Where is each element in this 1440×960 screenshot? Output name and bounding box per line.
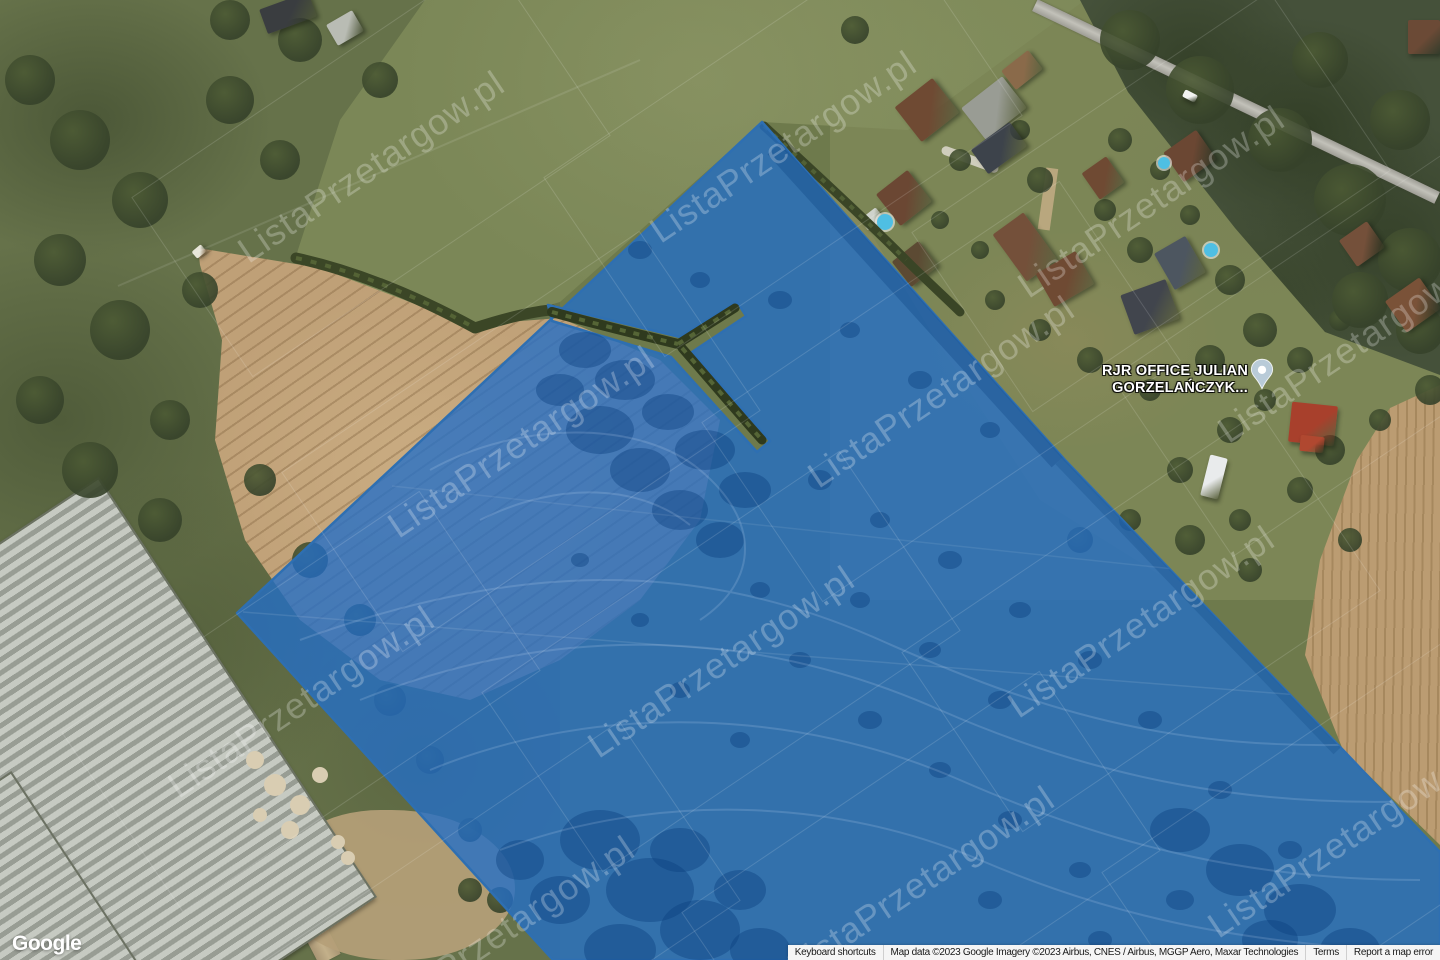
watermark-layer: ListaPrzetargow.plListaPrzetargow.plList… xyxy=(0,0,1440,960)
watermark-text: ListaPrzetargow.pl xyxy=(800,287,1082,496)
report-map-error-link[interactable]: Report a map error xyxy=(1346,945,1440,960)
watermark: ListaPrzetargow.pl xyxy=(281,231,760,652)
google-logo[interactable]: Google xyxy=(12,932,81,956)
watermark: ListaPrzetargow.pl xyxy=(901,411,1380,832)
watermark-text: ListaPrzetargow.pl xyxy=(1010,97,1292,306)
satellite-map-canvas[interactable]: ListaPrzetargow.plListaPrzetargow.plList… xyxy=(0,0,1440,960)
watermark: ListaPrzetargow.pl xyxy=(131,0,610,377)
watermark-text: ListaPrzetargow.pl xyxy=(1000,517,1282,726)
watermark-text: ListaPrzetargow.pl xyxy=(230,62,512,271)
watermark: ListaPrzetargow.pl xyxy=(61,491,540,912)
watermark-text: ListaPrzetargow.pl xyxy=(380,337,662,546)
watermark-text: ListaPrzetargow.pl xyxy=(1200,737,1440,946)
poi-label-line1: RJR OFFICE JULIAN xyxy=(1102,363,1248,380)
watermark: ListaPrzetargow.pl xyxy=(261,721,740,960)
watermark-text: ListaPrzetargow.pl xyxy=(580,557,862,766)
watermark-text: ListaPrzetargow.pl xyxy=(642,42,924,251)
keyboard-shortcuts-button[interactable]: Keyboard shortcuts xyxy=(788,945,883,960)
watermark: ListaPrzetargow.pl xyxy=(681,671,1160,960)
attribution-bar: Keyboard shortcuts Map data ©2023 Google… xyxy=(788,945,1440,960)
watermark: ListaPrzetargow.pl xyxy=(1101,631,1440,960)
watermark-text: ListaPrzetargow.pl xyxy=(1210,242,1440,451)
watermark-text: ListaPrzetargow.pl xyxy=(780,777,1062,960)
poi-label[interactable]: RJR OFFICE JULIAN GORZELAŃCZYK... xyxy=(1102,363,1248,396)
poi-label-line2: GORZELAŃCZYK... xyxy=(1102,380,1248,397)
terms-link[interactable]: Terms xyxy=(1305,945,1346,960)
watermark: ListaPrzetargow.pl xyxy=(1111,136,1440,557)
watermark-text: ListaPrzetargow.pl xyxy=(360,827,642,960)
poi-pin-icon[interactable] xyxy=(1250,356,1274,392)
watermark: ListaPrzetargow.pl xyxy=(543,0,1022,357)
watermark: ListaPrzetargow.pl xyxy=(481,451,960,872)
watermark: ListaPrzetargow.pl xyxy=(911,0,1390,412)
map-data-credits: Map data ©2023 Google Imagery ©2023 Airb… xyxy=(883,945,1306,960)
watermark-text: ListaPrzetargow.pl xyxy=(160,597,442,806)
